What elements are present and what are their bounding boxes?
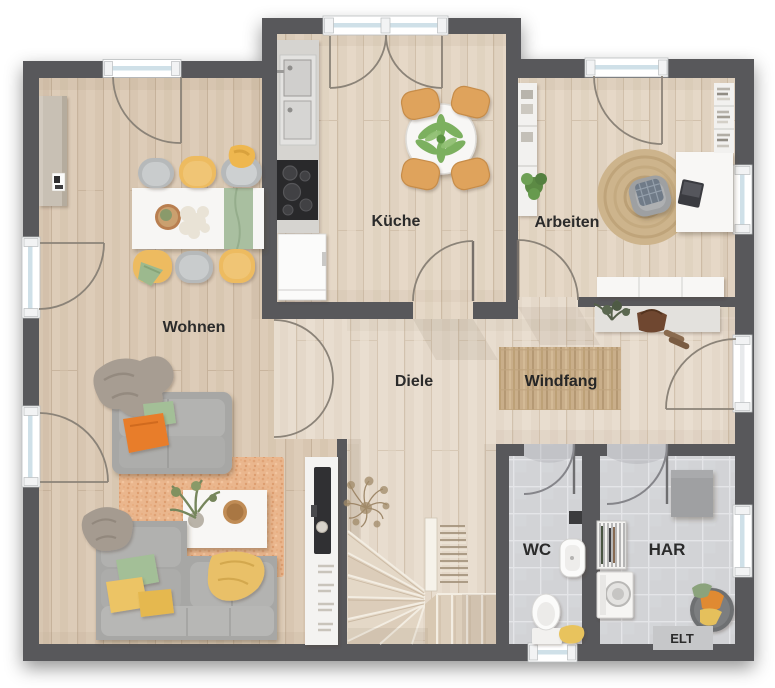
svg-text:ELT: ELT: [670, 631, 694, 646]
svg-text:Wohnen: Wohnen: [163, 319, 226, 336]
svg-text:WC: WC: [523, 540, 551, 559]
svg-text:Küche: Küche: [372, 213, 421, 230]
svg-text:Windfang: Windfang: [525, 373, 598, 390]
svg-text:HAR: HAR: [649, 540, 686, 559]
svg-text:Arbeiten: Arbeiten: [535, 214, 600, 231]
svg-text:Diele: Diele: [395, 373, 433, 390]
